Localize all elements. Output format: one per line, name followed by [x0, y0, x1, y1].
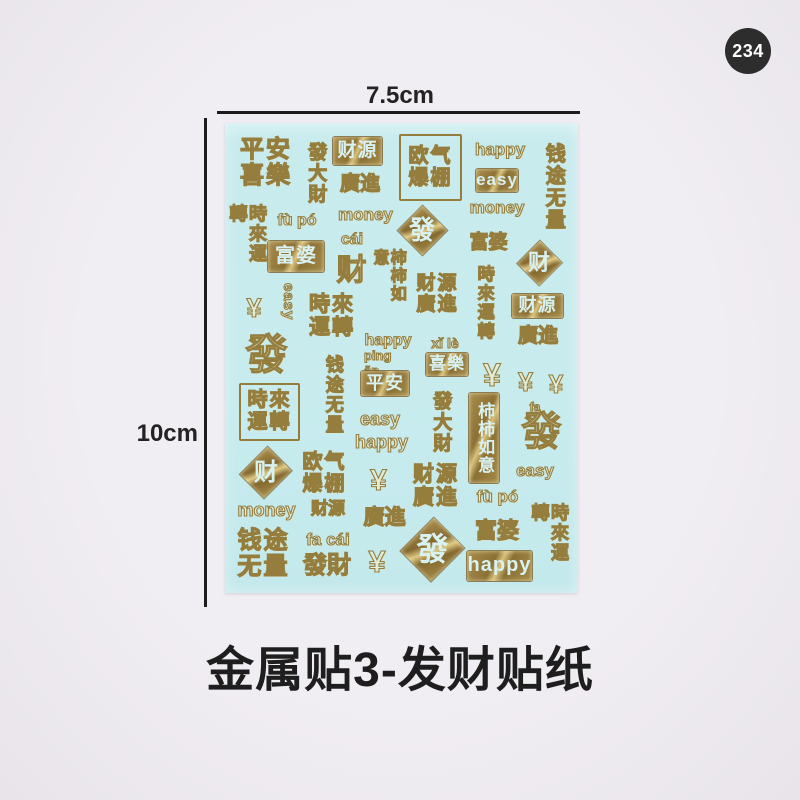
sticker-text: ¥ [246, 294, 261, 323]
sticker-text: 富婆 [275, 246, 317, 268]
sticker-text: 廣進 [340, 174, 380, 196]
sticker-text: 富婆 [475, 519, 519, 543]
sticker-text: 發 [409, 216, 435, 244]
sticker-cai-pinyin: cái [338, 231, 366, 248]
sticker-sheet: 平安 喜樂發大財财源廣進欧气 爆棚happyeasymoney钱途无量時來運轉f… [225, 123, 578, 593]
sticker-shi-lai-yun-zhuan-vert-3: 時來運轉 [534, 503, 563, 581]
sticker-text: ¥ [518, 368, 533, 397]
sticker-qian-tu-wu-liang-vert-2: 钱途无量 [322, 350, 344, 440]
sticker-easy-2: easy [356, 408, 404, 431]
sticker-cai-yuan-guang-jin-grid-1: 财源 廣進 [416, 274, 459, 316]
sticker-text: 欧气 爆棚 [303, 452, 347, 495]
sticker-easy-box: easy [476, 169, 518, 192]
sticker-fa-script-2: 發 [509, 410, 574, 455]
sticker-text: 發 [245, 332, 287, 377]
sticker-happy-3: happy [354, 431, 409, 454]
sticker-text: 财 [528, 251, 550, 275]
sticker-text: 廣進 [518, 326, 558, 348]
sticker-text: fa cái [306, 531, 349, 549]
sticker-text: easy [516, 462, 554, 480]
sticker-text: 财源 廣進 [416, 274, 458, 315]
sticker-text: 廣進 [364, 507, 406, 530]
sticker-text: 時來 運轉 [309, 294, 355, 339]
sticker-text: 财源 [337, 141, 377, 162]
sticker-guang-jin-2: 廣進 [509, 326, 567, 348]
sticker-yen-2: ¥ [511, 368, 540, 397]
height-dimension-line [204, 118, 207, 607]
sticker-fa-da-cai-vert: 發大財 [303, 136, 327, 211]
sticker-text: 發大財 [305, 142, 326, 205]
sticker-cai-yuan-box-2: 财源 [512, 294, 563, 318]
sticker-text: 發 [522, 411, 562, 454]
sticker-fa-diamond-2: 發 [402, 516, 463, 583]
sticker-text: 钱途无量 [323, 355, 342, 435]
sticker-text: 财源 [519, 296, 557, 315]
sticker-text: 富婆 [469, 233, 507, 254]
sticker-easy-3: easy [511, 460, 559, 482]
index-badge-number: 234 [732, 41, 764, 62]
sticker-ping-an-xi-le-grid: 平安 喜樂 [238, 138, 294, 188]
sticker-text: money [470, 199, 525, 217]
sticker-fu-po-script-2: 富婆 [472, 516, 522, 546]
sticker-text: 時來運轉 [529, 503, 568, 581]
sticker-yen-large: ¥ [476, 358, 508, 393]
sticker-cai-yuan-plain: 财源 [306, 500, 350, 519]
sticker-text: happy [364, 332, 411, 349]
sticker-text: xǐ lè [431, 336, 458, 351]
sticker-fa-cai: 發財 [294, 553, 360, 579]
sticker-text: happy [355, 433, 408, 452]
sticker-shi-lai-yun-zhuan-obox: 時來 運轉 [239, 383, 300, 441]
sticker-shi-lai-yun-zhuan-vert-1: 時來運轉 [235, 204, 258, 279]
sticker-xi-le-pinyin: xǐ lè [426, 336, 464, 352]
sticker-shi-lai-yun-zhuan-vert-2: 時來運轉 [472, 264, 495, 341]
sticker-text: 欧气 爆棚 [409, 146, 453, 189]
product-image: 234 7.5cm 10cm 平安 喜樂發大財财源廣進欧气 爆棚happyeas… [0, 0, 800, 800]
sticker-text: 時來 運轉 [248, 390, 292, 433]
sticker-text: easy [476, 171, 518, 189]
sticker-text: cái [341, 231, 363, 248]
sticker-money-2: money [335, 206, 396, 224]
sticker-happy-1: happy [472, 140, 528, 160]
sticker-text: easy [280, 283, 296, 320]
sticker-shi-lai-yun-zhuan-grid: 時來 運轉 [306, 294, 358, 340]
height-dimension-label: 10cm [118, 420, 198, 448]
sticker-cai-diamond-1: 财 [517, 240, 561, 286]
sticker-text: money [338, 206, 393, 224]
sticker-text: 财 [254, 460, 278, 486]
width-dimension-label: 7.5cm [300, 82, 500, 110]
sticker-text: happy [475, 141, 525, 159]
sticker-yen-1: ¥ [239, 295, 269, 323]
sticker-fa-large-script: 發 [242, 330, 291, 380]
sticker-text: 發 [416, 532, 448, 567]
width-dimension-line [217, 111, 580, 114]
sticker-text: easy [360, 410, 400, 429]
sticker-money-1: money [467, 199, 527, 217]
sticker-text: ¥ [483, 358, 501, 393]
sticker-xi-le-box: 喜樂 [426, 353, 468, 376]
sticker-shi-shi-ru-yi-box-vert: 柿柿如意 [469, 393, 499, 483]
sticker-qian-tu-wu-liang-grid: 钱途 无量 [234, 528, 293, 580]
sticker-text: 時來運轉 [474, 265, 492, 341]
sticker-ou-qi-bao-peng-obox: 欧气 爆棚 [399, 134, 462, 201]
sticker-text: 柿柿如意 [370, 249, 405, 319]
sticker-text: ¥ [549, 370, 563, 398]
sticker-happy-box: happy [467, 551, 532, 581]
sticker-fa-da-cai-vert-2: 發大財 [427, 388, 453, 456]
sticker-qian-tu-wu-liang-vert-1: 钱途无量 [540, 137, 565, 237]
sticker-yen-5: ¥ [362, 543, 392, 580]
sticker-text: fù pó [277, 212, 316, 229]
sticker-text: fù pó [477, 488, 519, 506]
sticker-cai-yuan-box: 财源 [333, 137, 382, 165]
sticker-text: 财源 [311, 500, 345, 518]
sticker-text: 钱途 无量 [238, 528, 290, 580]
index-badge: 234 [725, 28, 771, 74]
sticker-text: money [237, 501, 295, 520]
sticker-text: 發財 [303, 553, 351, 579]
sticker-ping-an-box: 平安 [361, 371, 409, 396]
sticker-money-3: money [236, 500, 297, 522]
sticker-cai-large: 财 [334, 255, 369, 288]
sticker-ping-an-pinyin: ping ān [364, 356, 404, 371]
sticker-cai-yuan-guang-jin-grid-2: 财源 廣進 [409, 463, 463, 510]
sticker-fu-po-box: 富婆 [268, 241, 324, 272]
sticker-text: 時來運轉 [227, 204, 266, 279]
product-caption: 金属贴3-发财贴纸 [0, 630, 800, 700]
sticker-fu-po-script-1: 富婆 [466, 232, 511, 255]
sticker-text: 财 [337, 255, 367, 287]
sticker-shi-shi-ru-yi-vert: 柿柿如意 [377, 249, 398, 319]
sticker-text: happy [468, 555, 532, 577]
sticker-text: 柿柿如意 [475, 402, 493, 474]
sticker-fu-po-pinyin-1: fù pó [270, 211, 324, 231]
sticker-cai-diamond-2: 财 [242, 445, 290, 500]
sticker-text: 财源 廣進 [413, 464, 459, 509]
sticker-text: 喜樂 [429, 355, 465, 373]
sticker-fa-cai-pinyin: fa cái [299, 530, 357, 551]
sticker-text: 平安 喜樂 [240, 137, 292, 189]
sticker-text: 平安 [366, 374, 404, 393]
sticker-text: 發大財 [430, 391, 451, 454]
sticker-text: ¥ [370, 465, 387, 497]
sticker-fa-diamond-1: 發 [397, 205, 447, 255]
sticker-text: 钱途无量 [542, 143, 564, 231]
sticker-ou-qi-bao-peng-grid-2: 欧气 爆棚 [299, 445, 350, 503]
sticker-yen-3: ¥ [542, 370, 570, 398]
sticker-text: ¥ [368, 545, 385, 578]
sticker-easy-vert: easy [279, 273, 297, 331]
sticker-fu-po-pinyin-2: fù pó [467, 486, 528, 509]
sticker-yen-4: ¥ [364, 463, 393, 499]
sticker-guang-jin: 廣進 [336, 173, 384, 197]
